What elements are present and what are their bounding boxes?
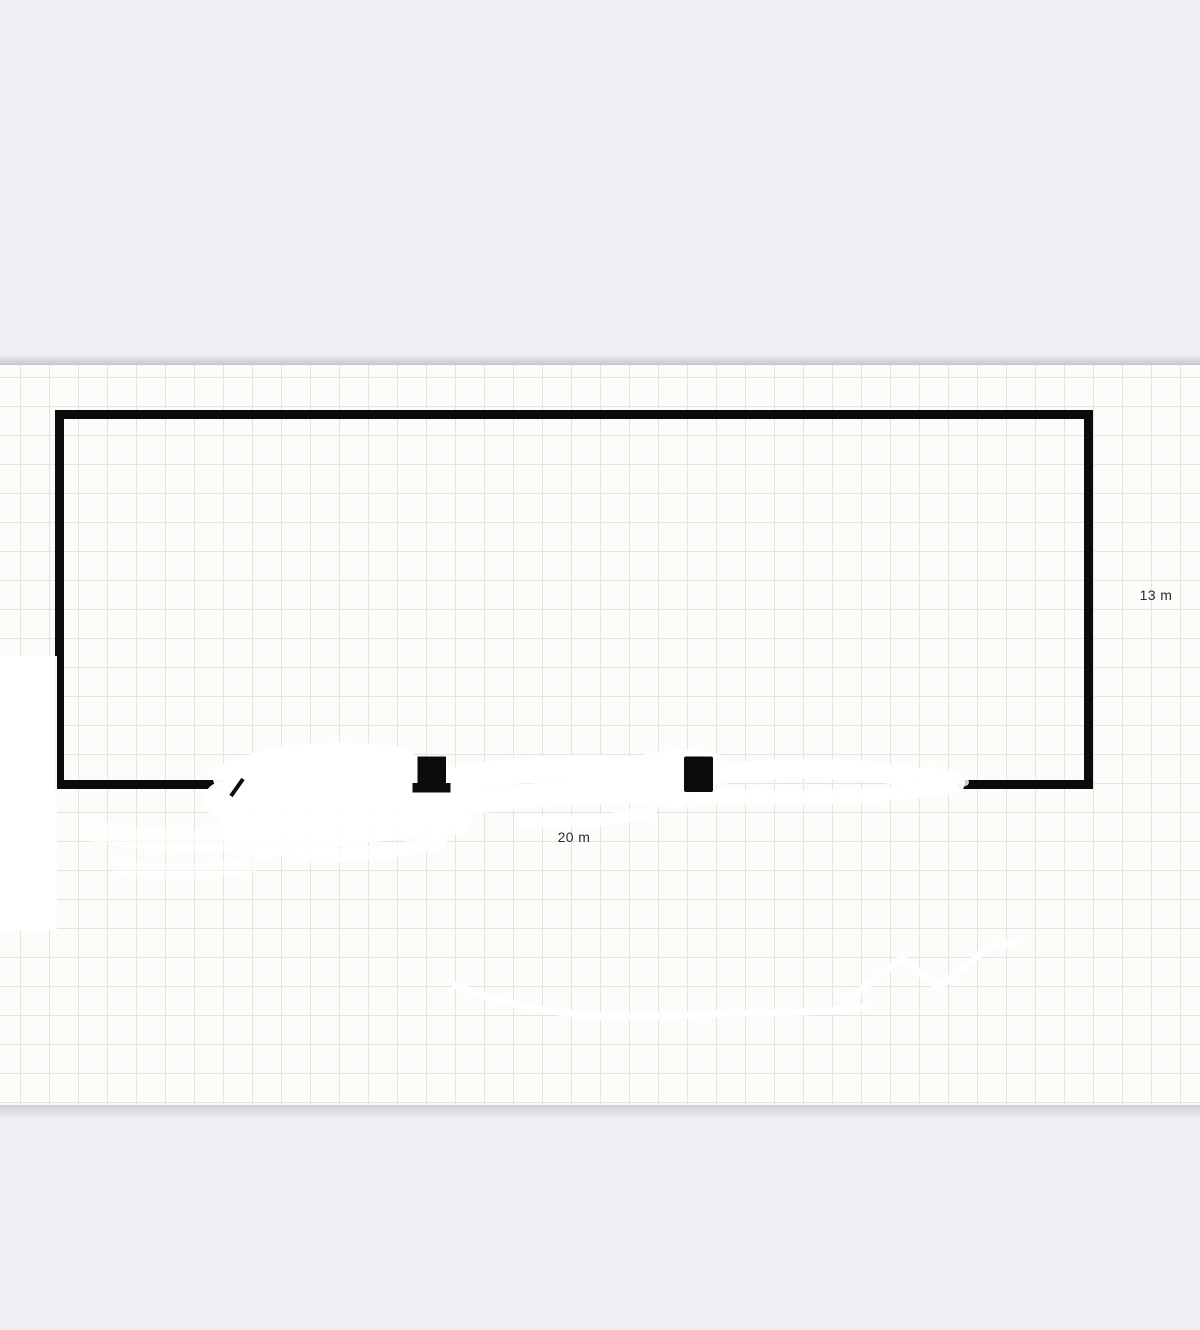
room-walls[interactable]: [60, 415, 1089, 785]
fixture-marker-right[interactable]: [684, 757, 713, 793]
eraser-scribbles: [0, 656, 1015, 1017]
dimension-label-width: 20 m: [538, 827, 610, 847]
fixture-marker-icon: [418, 757, 447, 785]
eraser-patch-left-margin: [0, 656, 57, 930]
floorplan-editor-viewport: 13 m 20 m: [0, 0, 1200, 1330]
canvas-margin-top: [0, 0, 1200, 365]
dimension-label-height: 13 m: [1120, 585, 1192, 605]
fixture-marker-left[interactable]: [413, 757, 451, 793]
fixture-marker-base: [413, 783, 451, 793]
canvas-margin-bottom: [0, 1105, 1200, 1330]
